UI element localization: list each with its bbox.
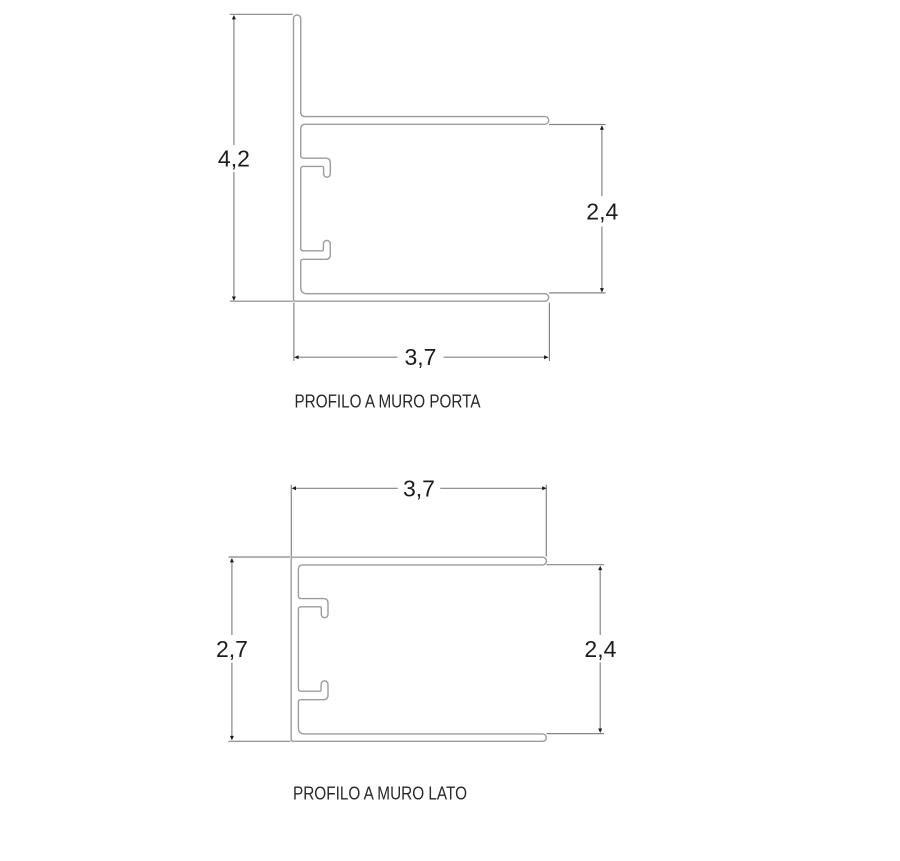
svg-text:4,2: 4,2 [218, 146, 250, 172]
svg-text:3,7: 3,7 [405, 344, 437, 370]
svg-text:3,7: 3,7 [403, 475, 435, 501]
svg-text:2,4: 2,4 [586, 198, 618, 224]
svg-text:PROFILO A MURO PORTA: PROFILO A MURO PORTA [295, 391, 482, 412]
svg-text:2,4: 2,4 [584, 636, 616, 662]
svg-text:2,7: 2,7 [216, 636, 248, 662]
svg-text:PROFILO A MURO LATO: PROFILO A MURO LATO [293, 783, 467, 804]
